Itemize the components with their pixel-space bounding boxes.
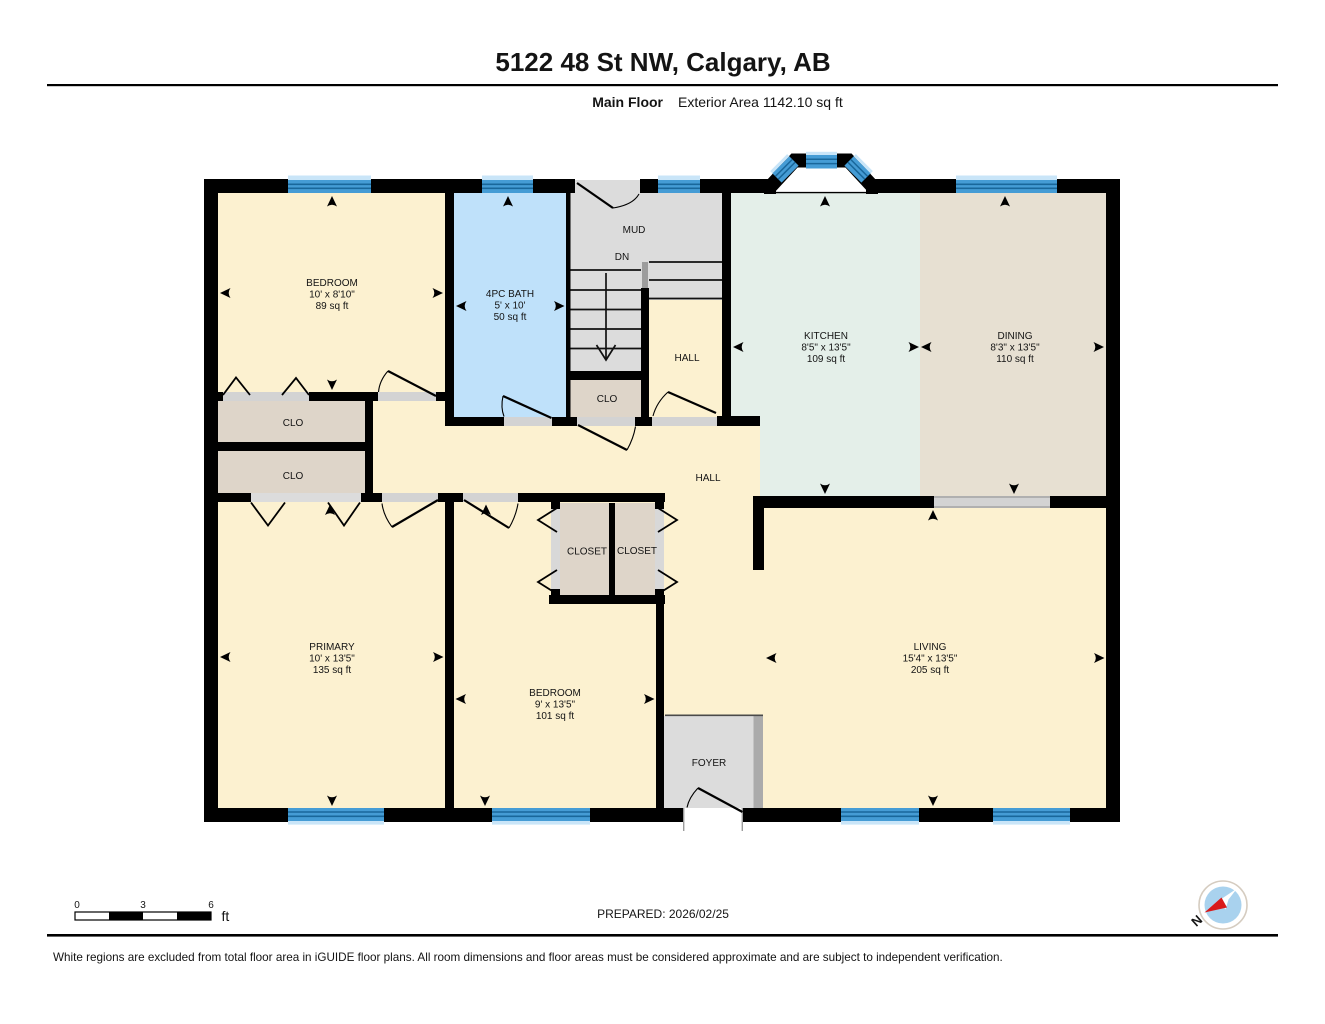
svg-text:CLO: CLO xyxy=(283,471,304,482)
svg-text:CLO: CLO xyxy=(283,418,304,429)
svg-text:101 sq ft: 101 sq ft xyxy=(536,711,575,722)
svg-text:PREPARED: 2026/02/25: PREPARED: 2026/02/25 xyxy=(597,907,729,921)
svg-text:89 sq ft: 89 sq ft xyxy=(316,301,349,312)
svg-text:CLOSET: CLOSET xyxy=(617,546,657,557)
svg-text:8'3" x 13'5": 8'3" x 13'5" xyxy=(990,343,1040,354)
svg-text:CLOSET: CLOSET xyxy=(567,547,607,558)
svg-text:15'4" x 13'5": 15'4" x 13'5" xyxy=(903,654,958,665)
svg-text:DINING: DINING xyxy=(998,331,1033,342)
svg-text:10' x 8'10": 10' x 8'10" xyxy=(309,290,355,301)
svg-text:Exterior Area 1142.10 sq ft: Exterior Area 1142.10 sq ft xyxy=(678,94,843,110)
svg-text:Main Floor: Main Floor xyxy=(592,94,663,110)
svg-text:ft: ft xyxy=(222,908,230,924)
svg-text:9' x 13'5": 9' x 13'5" xyxy=(535,700,576,711)
svg-text:5' x 10': 5' x 10' xyxy=(494,301,525,312)
svg-text:50 sq ft: 50 sq ft xyxy=(494,312,527,323)
svg-text:4PC BATH: 4PC BATH xyxy=(486,289,534,300)
svg-text:KITCHEN: KITCHEN xyxy=(804,331,848,342)
svg-text:5122 48 St NW, Calgary, AB: 5122 48 St NW, Calgary, AB xyxy=(495,47,830,77)
svg-text:205 sq ft: 205 sq ft xyxy=(911,665,950,676)
svg-text:PRIMARY: PRIMARY xyxy=(309,642,355,653)
svg-text:MUD: MUD xyxy=(623,225,646,236)
svg-text:110 sq ft: 110 sq ft xyxy=(996,354,1034,365)
svg-text:3: 3 xyxy=(140,900,146,911)
svg-text:White regions are excluded fro: White regions are excluded from total fl… xyxy=(53,951,1003,964)
svg-text:HALL: HALL xyxy=(674,353,699,364)
svg-text:DN: DN xyxy=(615,252,629,263)
svg-text:135 sq ft: 135 sq ft xyxy=(313,665,352,676)
svg-text:BEDROOM: BEDROOM xyxy=(306,278,358,289)
svg-text:0: 0 xyxy=(74,900,80,911)
svg-text:BEDROOM: BEDROOM xyxy=(529,688,581,699)
svg-text:6: 6 xyxy=(208,900,214,911)
svg-text:10' x 13'5": 10' x 13'5" xyxy=(309,654,355,665)
svg-text:CLO: CLO xyxy=(597,394,618,405)
svg-text:LIVING: LIVING xyxy=(914,642,947,653)
svg-text:8'5" x 13'5": 8'5" x 13'5" xyxy=(801,343,851,354)
svg-text:HALL: HALL xyxy=(695,473,720,484)
svg-text:109 sq ft: 109 sq ft xyxy=(807,354,846,365)
svg-text:FOYER: FOYER xyxy=(692,758,726,769)
